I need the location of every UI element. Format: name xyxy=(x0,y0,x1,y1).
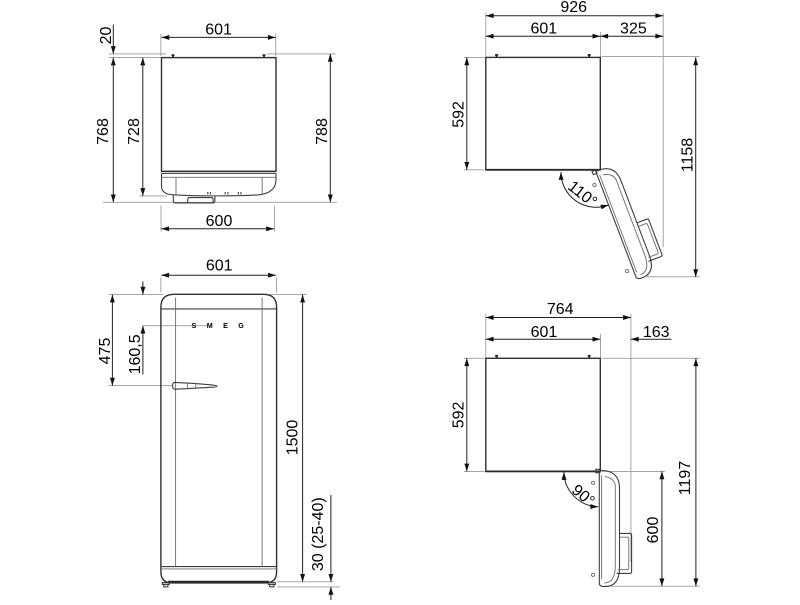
svg-text:600: 600 xyxy=(206,213,233,230)
svg-text:SMEG: SMEG xyxy=(192,321,255,330)
svg-text:601: 601 xyxy=(206,258,233,275)
svg-text:600: 600 xyxy=(645,517,662,544)
svg-text:592: 592 xyxy=(450,101,467,128)
svg-text:20: 20 xyxy=(98,27,115,45)
svg-text:1500: 1500 xyxy=(285,420,302,456)
svg-text:163: 163 xyxy=(643,324,670,341)
svg-text:601: 601 xyxy=(530,20,557,37)
svg-text:160,5: 160,5 xyxy=(127,334,144,374)
svg-text:325: 325 xyxy=(620,20,647,37)
svg-text:1158: 1158 xyxy=(680,138,697,173)
svg-text:926: 926 xyxy=(560,0,587,16)
svg-text:788: 788 xyxy=(314,118,331,145)
svg-text:764: 764 xyxy=(547,301,574,318)
svg-text:592: 592 xyxy=(450,401,467,428)
svg-text:768: 768 xyxy=(95,118,112,145)
svg-text:728: 728 xyxy=(126,118,143,145)
svg-text:475: 475 xyxy=(97,338,114,365)
svg-text:601: 601 xyxy=(531,324,558,341)
svg-text:1197: 1197 xyxy=(677,461,694,496)
svg-text:601: 601 xyxy=(205,21,232,38)
svg-text:30 (25-40): 30 (25-40) xyxy=(310,497,327,571)
